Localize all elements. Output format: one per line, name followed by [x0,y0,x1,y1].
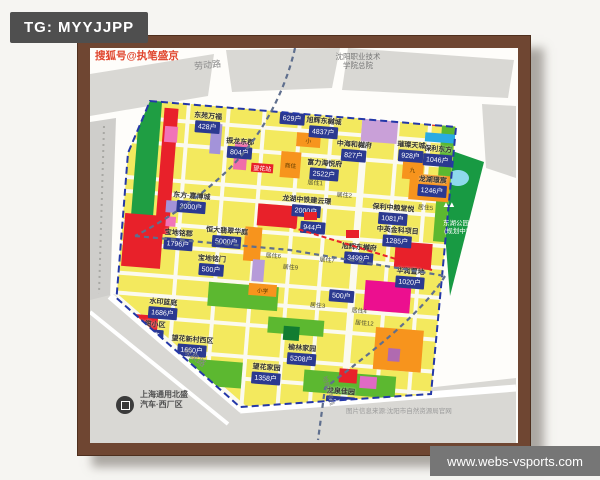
zone-red-block [339,368,358,383]
units-badge: 1358户 [251,371,280,385]
park-label: 东湖公园 (规划中) [430,220,482,236]
units-badge: 1020户 [395,275,424,289]
college-label: 沈阳职业技术 学院总院 [318,52,398,70]
area-label: 居住9 [283,261,299,271]
units-badge: 629户 [279,112,305,126]
units-badge: 2000户 [291,204,320,218]
park-name: 东湖公园 [430,220,482,228]
credit-text: 搜狐号@执笔盛京 [95,48,179,63]
tree-icon: ▲▲ [442,200,454,209]
units-badge: 1246户 [417,184,446,198]
area-label: 居住12 [355,317,374,327]
units-badge: 5000户 [212,235,241,249]
park-status: (规划中) [430,228,482,236]
college-line2: 学院总院 [318,61,398,70]
college-line1: 沈阳职业技术 [318,52,398,61]
units-badge: 827户 [341,149,367,163]
units-badge: 5208户 [287,352,316,366]
zone-orange-block: 小学 [248,283,277,297]
zone-green-park-dark [283,326,300,341]
zone-orange-block: 商住 [280,151,302,178]
zone-pink-block [165,216,176,227]
map-canvas: 小商住九小学 东苑万福428户中盛国际花园629户旭辉东樾城旭辉东樾城4837户… [90,48,518,443]
units-badge: 1796户 [163,237,192,251]
units-badge: 500户 [198,263,224,277]
gm-logo-icon [116,396,134,414]
units-badge: 804户 [227,146,253,160]
area-label: 居住5 [418,202,434,212]
units-badge: 928户 [398,149,424,163]
area-label: 居住1 [307,177,323,187]
plant-line1: 上海通用北盛 [140,390,234,400]
area-label: 居住6 [265,250,281,260]
station-tag: 望花站 [251,163,274,174]
zone-label: 小学 [257,285,269,294]
units-badge: 1285户 [382,234,411,248]
units-badge: 428户 [194,120,220,134]
zone-label: 商住 [284,160,296,169]
units-badge: 3000户 [176,200,205,214]
site-watermark: www.webs-vsports.com [430,446,600,476]
zone-purple-block [251,259,265,282]
units-badge: 1686户 [148,306,177,320]
tg-tag: TG: MYYJJPP [10,12,148,43]
source-note: 图片信息来源:沈阳市自然资源局官网 [346,405,452,415]
zone-pink-block [359,376,377,389]
units-badge: 944户 [300,221,326,235]
units-badge: 3499户 [344,251,373,265]
area-label: 居住7 [319,254,335,264]
gm-plant-label: 上海通用北盛 汽车·西厂区 [114,390,234,410]
area-label: 居住4 [351,305,367,315]
plant-line2: 汽车·西厂区 [140,400,234,410]
zone-pink-block [164,126,178,143]
area-label: 居住2 [336,189,352,199]
zone-red-block-sw [121,213,164,269]
units-badge: 4837户 [308,125,337,139]
units-badge: 1046户 [423,153,452,167]
area-label: 居住3 [310,300,326,310]
units-badge: 500户 [329,289,355,303]
zone-purple-block [387,348,400,362]
